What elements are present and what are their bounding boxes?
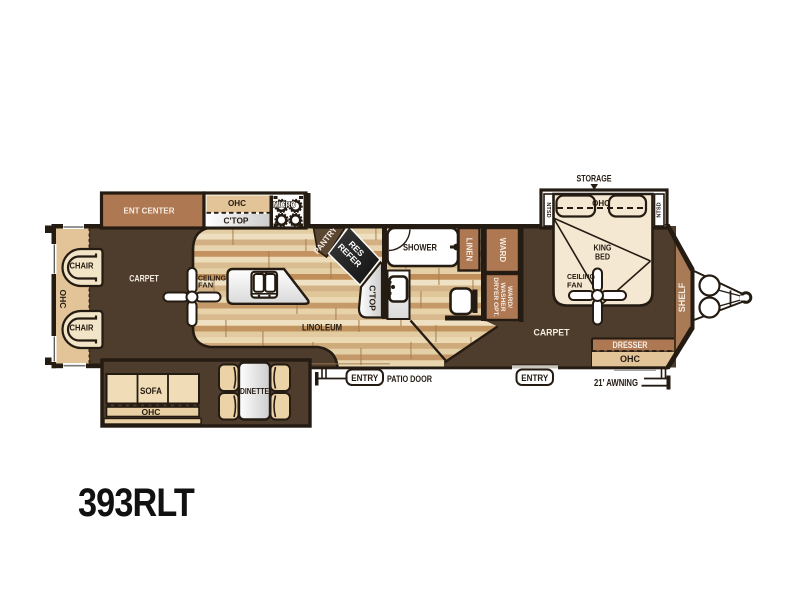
svg-text:OHC: OHC — [592, 199, 610, 208]
svg-text:SOFA: SOFA — [140, 386, 163, 396]
svg-text:21' AWNING: 21' AWNING — [594, 378, 638, 389]
svg-text:CHAIR: CHAIR — [70, 261, 94, 271]
svg-text:OHC: OHC — [58, 290, 68, 309]
svg-text:FAN: FAN — [198, 280, 213, 289]
svg-text:WASHER: WASHER — [499, 283, 506, 312]
svg-text:393RLT: 393RLT — [78, 481, 194, 525]
svg-text:OHC: OHC — [228, 199, 246, 208]
svg-text:DINETTE: DINETTE — [240, 387, 270, 396]
svg-text:OHC: OHC — [142, 407, 161, 417]
svg-text:C'TOP: C'TOP — [224, 217, 250, 226]
svg-text:SHELF: SHELF — [677, 282, 687, 312]
svg-text:PATIO DOOR: PATIO DOOR — [387, 374, 432, 385]
svg-text:CARPET: CARPET — [534, 328, 570, 339]
svg-text:DRESSER: DRESSER — [613, 340, 649, 350]
svg-text:CARPET: CARPET — [129, 274, 159, 284]
svg-text:SHOWER: SHOWER — [403, 243, 437, 253]
svg-text:C'TOP: C'TOP — [368, 285, 378, 311]
svg-text:NTSD: NTSD — [657, 202, 663, 217]
svg-text:NTSD: NTSD — [545, 202, 551, 217]
svg-text:ENT CENTER: ENT CENTER — [124, 206, 176, 216]
svg-text:FAN: FAN — [567, 280, 582, 289]
svg-text:LINEN: LINEN — [465, 238, 474, 262]
svg-text:OHC: OHC — [620, 354, 641, 364]
svg-text:LINOLEUM: LINOLEUM — [302, 323, 342, 333]
svg-text:WARD: WARD — [498, 238, 507, 263]
svg-text:ENTRY: ENTRY — [521, 372, 549, 383]
svg-text:BED: BED — [595, 252, 610, 262]
svg-text:STORAGE: STORAGE — [577, 174, 612, 185]
svg-text:MICRO: MICRO — [273, 201, 296, 210]
svg-text:DRYER OPT.: DRYER OPT. — [492, 277, 499, 316]
svg-text:WARD/: WARD/ — [506, 286, 513, 308]
svg-text:CHAIR: CHAIR — [70, 323, 94, 333]
svg-text:ENTRY: ENTRY — [351, 372, 379, 383]
